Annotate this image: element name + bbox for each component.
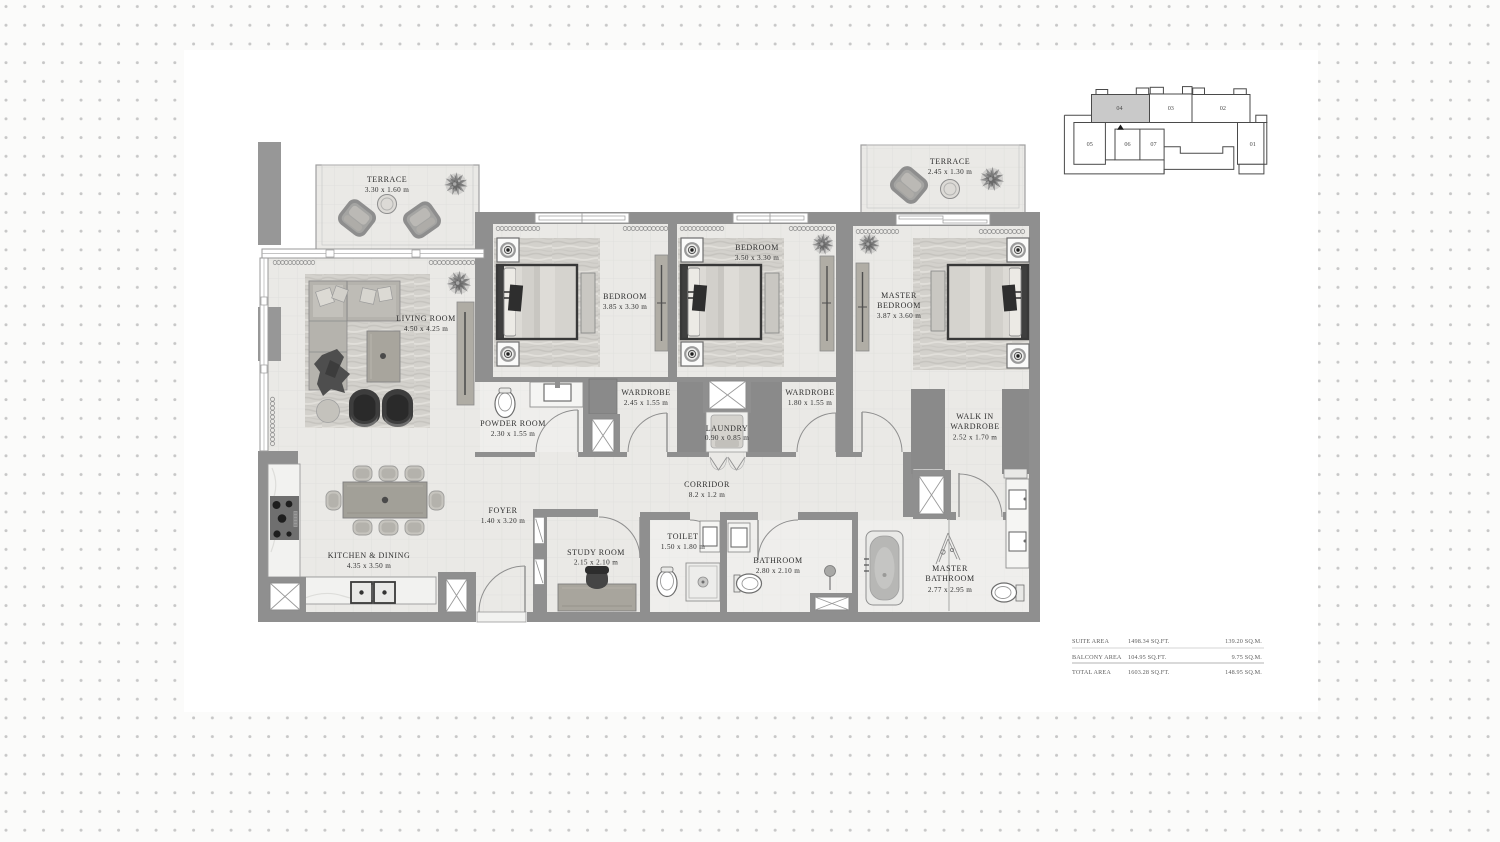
svg-text:BALCONY AREA: BALCONY AREA: [1072, 654, 1122, 661]
svg-text:BATHROOM: BATHROOM: [925, 574, 974, 583]
svg-text:POWDER ROOM: POWDER ROOM: [480, 419, 546, 428]
svg-text:3.30 x 1.60 m: 3.30 x 1.60 m: [365, 186, 409, 194]
svg-text:1.50 x 1.80 m: 1.50 x 1.80 m: [661, 543, 705, 551]
svg-text:2.52 x 1.70 m: 2.52 x 1.70 m: [953, 434, 997, 442]
svg-text:SUITE AREA: SUITE AREA: [1072, 638, 1109, 645]
svg-text:104.95 SQ.FT.: 104.95 SQ.FT.: [1128, 654, 1167, 661]
svg-text:LIVING ROOM: LIVING ROOM: [396, 314, 456, 323]
svg-text:TERRACE: TERRACE: [930, 157, 970, 166]
svg-text:3.85 x 3.30 m: 3.85 x 3.30 m: [603, 303, 647, 311]
svg-text:2.15 x 2.10 m: 2.15 x 2.10 m: [574, 559, 618, 567]
svg-text:148.95 SQ.M.: 148.95 SQ.M.: [1225, 669, 1262, 676]
svg-text:03: 03: [1168, 105, 1174, 112]
svg-text:3.87 x 3.60 m: 3.87 x 3.60 m: [877, 312, 921, 320]
svg-text:3.50 x 3.30 m: 3.50 x 3.30 m: [735, 254, 779, 262]
svg-text:2.80 x 2.10 m: 2.80 x 2.10 m: [756, 567, 800, 575]
svg-text:01: 01: [1250, 141, 1256, 148]
svg-text:WARDROBE: WARDROBE: [621, 388, 670, 397]
svg-text:04: 04: [1116, 105, 1122, 112]
svg-text:0.90 x 0.85 m: 0.90 x 0.85 m: [705, 434, 749, 442]
svg-text:07: 07: [1150, 141, 1156, 148]
svg-text:BATHROOM: BATHROOM: [753, 556, 802, 565]
svg-text:2.30 x 1.55 m: 2.30 x 1.55 m: [491, 430, 535, 438]
svg-text:STUDY ROOM: STUDY ROOM: [567, 548, 625, 557]
svg-text:06: 06: [1124, 141, 1130, 148]
svg-text:139.20 SQ.M.: 139.20 SQ.M.: [1225, 638, 1262, 645]
svg-text:LAUNDRY: LAUNDRY: [706, 424, 749, 433]
svg-text:BEDROOM: BEDROOM: [735, 243, 779, 252]
svg-text:BEDROOM: BEDROOM: [877, 301, 921, 310]
svg-text:WALK IN: WALK IN: [956, 412, 993, 421]
svg-text:BEDROOM: BEDROOM: [603, 292, 647, 301]
svg-text:1498.34 SQ.FT.: 1498.34 SQ.FT.: [1128, 638, 1170, 645]
svg-text:2.77 x 2.95 m: 2.77 x 2.95 m: [928, 586, 972, 594]
svg-text:KITCHEN & DINING: KITCHEN & DINING: [328, 551, 411, 560]
svg-text:CORRIDOR: CORRIDOR: [684, 480, 730, 489]
svg-text:1.80 x 1.55 m: 1.80 x 1.55 m: [788, 399, 832, 407]
svg-text:8.2 x 1.2 m: 8.2 x 1.2 m: [689, 491, 725, 499]
svg-text:WARDROBE: WARDROBE: [785, 388, 834, 397]
svg-text:2.45 x 1.30 m: 2.45 x 1.30 m: [928, 168, 972, 176]
svg-text:1603.28 SQ.FT.: 1603.28 SQ.FT.: [1128, 669, 1170, 676]
svg-text:1.40 x 3.20 m: 1.40 x 3.20 m: [481, 517, 525, 525]
svg-text:TOTAL AREA: TOTAL AREA: [1072, 669, 1111, 676]
svg-text:MASTER: MASTER: [881, 291, 917, 300]
svg-text:02: 02: [1220, 105, 1226, 112]
svg-text:9.75 SQ.M.: 9.75 SQ.M.: [1232, 654, 1263, 661]
svg-text:2.45 x 1.55 m: 2.45 x 1.55 m: [624, 399, 668, 407]
svg-text:TERRACE: TERRACE: [367, 175, 407, 184]
svg-text:FOYER: FOYER: [489, 506, 518, 515]
svg-text:TOILET: TOILET: [667, 532, 698, 541]
svg-text:4.35 x 3.50 m: 4.35 x 3.50 m: [347, 562, 391, 570]
svg-text:WARDROBE: WARDROBE: [950, 422, 999, 431]
svg-text:MASTER: MASTER: [932, 564, 968, 573]
svg-text:05: 05: [1087, 141, 1093, 148]
svg-text:4.50 x 4.25 m: 4.50 x 4.25 m: [404, 325, 448, 333]
